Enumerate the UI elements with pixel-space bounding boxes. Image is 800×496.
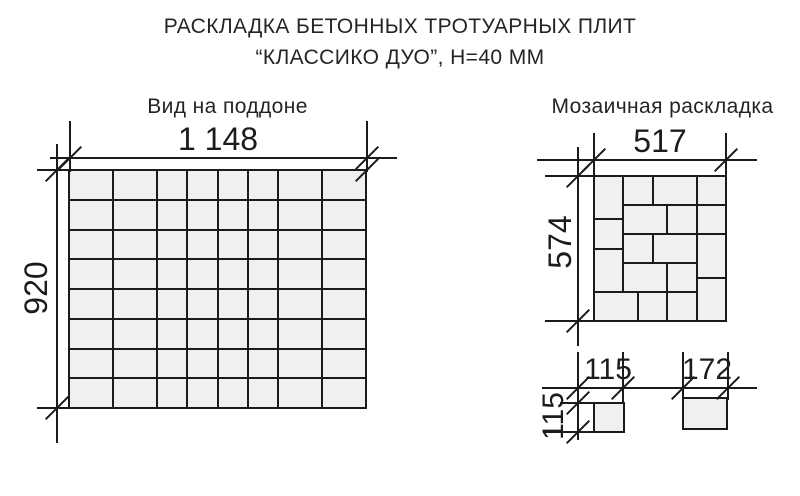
pallet-tile bbox=[279, 350, 321, 378]
pallet-tile bbox=[323, 260, 365, 288]
mosaic-width-label: 517 bbox=[600, 125, 720, 157]
paving-layout-diagram: РАСКЛАДКА БЕТОННЫХ ТРОТУАРНЫХ ПЛИТ “КЛАС… bbox=[0, 0, 800, 496]
pallet-tile bbox=[158, 320, 186, 348]
pallet-tile bbox=[158, 171, 186, 199]
mosaic-tile bbox=[594, 292, 638, 321]
square-tile-width-label: 115 bbox=[558, 354, 658, 386]
pallet-tile bbox=[279, 231, 321, 259]
pallet-tile bbox=[188, 320, 216, 348]
pallet-tile bbox=[323, 201, 365, 229]
pallet-tile bbox=[279, 379, 321, 407]
single-tile-rect bbox=[682, 397, 728, 430]
pallet-tile bbox=[188, 171, 216, 199]
pallet-tile bbox=[249, 320, 277, 348]
pallet-tile bbox=[188, 350, 216, 378]
mosaic-tile bbox=[697, 234, 726, 278]
mosaic-tile bbox=[667, 292, 697, 321]
mosaic-height-extension-line-bottom bbox=[545, 320, 593, 322]
pallet-tile bbox=[249, 201, 277, 229]
pallet-tile bbox=[114, 379, 156, 407]
pallet-tile bbox=[249, 350, 277, 378]
pallet-tile bbox=[114, 231, 156, 259]
mosaic-height-label: 574 bbox=[544, 197, 576, 287]
pallet-tile bbox=[219, 231, 247, 259]
mosaic-pattern bbox=[593, 175, 727, 322]
pallet-tile bbox=[70, 290, 112, 318]
mosaic-width-extension-line-left bbox=[593, 133, 595, 176]
pallet-tile bbox=[219, 379, 247, 407]
pallet-tile bbox=[188, 201, 216, 229]
pallet-tile bbox=[114, 320, 156, 348]
mosaic-tile bbox=[653, 234, 697, 263]
pallet-tile bbox=[70, 201, 112, 229]
rect-tile-width-label: 172 bbox=[657, 354, 757, 386]
square-tile-height-label: 115 bbox=[538, 386, 568, 446]
pallet-tile bbox=[158, 290, 186, 318]
pallet-width-extension-line-left bbox=[69, 121, 71, 172]
pallet-tile bbox=[249, 260, 277, 288]
mosaic-tile bbox=[623, 176, 653, 205]
mosaic-tile bbox=[594, 219, 623, 249]
pallet-tile bbox=[114, 260, 156, 288]
mosaic-width-extension-line-right bbox=[725, 133, 727, 176]
pallet-tile bbox=[279, 201, 321, 229]
pallet-tile bbox=[114, 201, 156, 229]
pallet-tile bbox=[158, 260, 186, 288]
pallet-tile bbox=[279, 171, 321, 199]
pallet-grid bbox=[68, 169, 367, 409]
pallet-tile bbox=[323, 320, 365, 348]
pallet-tile bbox=[188, 379, 216, 407]
pallet-tile bbox=[70, 171, 112, 199]
mosaic-tile bbox=[623, 234, 653, 263]
pallet-tile bbox=[249, 231, 277, 259]
pallet-tile bbox=[70, 350, 112, 378]
mosaic-tile bbox=[697, 205, 726, 234]
pallet-tile bbox=[249, 379, 277, 407]
pallet-tile bbox=[249, 290, 277, 318]
pallet-tile bbox=[249, 171, 277, 199]
pallet-tile bbox=[188, 290, 216, 318]
pallet-tile bbox=[323, 350, 365, 378]
pallet-tile bbox=[114, 290, 156, 318]
pallet-tile bbox=[219, 201, 247, 229]
mosaic-tile bbox=[623, 263, 667, 292]
title-line-2: “КЛАССИКО ДУО”, Н=40 ММ bbox=[0, 42, 800, 73]
pallet-tile bbox=[114, 171, 156, 199]
mosaic-tile bbox=[697, 278, 726, 321]
mosaic-tile bbox=[667, 263, 697, 292]
page-title: РАСКЛАДКА БЕТОННЫХ ТРОТУАРНЫХ ПЛИТ “КЛАС… bbox=[0, 11, 800, 73]
pallet-width-extension-line-right bbox=[366, 121, 368, 172]
mosaic-tile bbox=[667, 205, 697, 234]
pallet-tile bbox=[323, 231, 365, 259]
mosaic-view-heading: Мозаичная раскладка bbox=[535, 95, 790, 119]
pallet-tile bbox=[158, 231, 186, 259]
mosaic-tile bbox=[653, 176, 697, 205]
pallet-view-heading: Вид на поддоне bbox=[105, 95, 350, 119]
pallet-tile bbox=[279, 290, 321, 318]
pallet-tile bbox=[158, 201, 186, 229]
pallet-tile bbox=[70, 320, 112, 348]
pallet-tile bbox=[219, 290, 247, 318]
pallet-tile bbox=[188, 260, 216, 288]
mosaic-tile bbox=[594, 176, 623, 219]
single-tile-square bbox=[593, 402, 625, 433]
pallet-width-label: 1 148 bbox=[118, 123, 318, 155]
pallet-tile bbox=[70, 260, 112, 288]
mosaic-tile bbox=[623, 205, 667, 234]
pallet-width-dimension-line bbox=[50, 157, 397, 159]
title-line-1: РАСКЛАДКА БЕТОННЫХ ТРОТУАРНЫХ ПЛИТ bbox=[0, 11, 800, 42]
pallet-tile bbox=[219, 171, 247, 199]
pallet-tile bbox=[323, 379, 365, 407]
mosaic-height-extension-line-top bbox=[545, 175, 593, 177]
pallet-tile bbox=[219, 350, 247, 378]
mosaic-tile bbox=[594, 249, 623, 292]
pallet-tile bbox=[158, 350, 186, 378]
mosaic-tile bbox=[638, 292, 667, 321]
pallet-tile bbox=[114, 350, 156, 378]
pallet-tile bbox=[219, 260, 247, 288]
pallet-tile bbox=[279, 320, 321, 348]
mosaic-tile bbox=[697, 176, 726, 205]
pallet-height-label: 920 bbox=[20, 243, 52, 333]
pallet-height-dimension-line bbox=[56, 144, 58, 443]
pallet-tile bbox=[70, 379, 112, 407]
pallet-tile bbox=[158, 379, 186, 407]
pallet-tile bbox=[219, 320, 247, 348]
pallet-tile bbox=[279, 260, 321, 288]
pallet-tile bbox=[188, 231, 216, 259]
pallet-tile bbox=[70, 231, 112, 259]
pallet-tile bbox=[323, 290, 365, 318]
